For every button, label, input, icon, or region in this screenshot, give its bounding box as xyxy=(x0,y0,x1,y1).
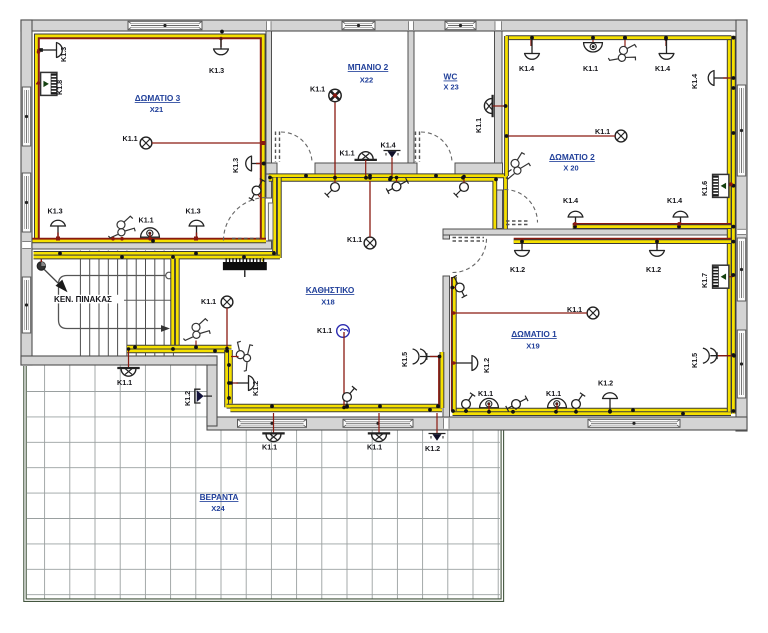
svg-text:K1.5: K1.5 xyxy=(400,352,409,367)
svg-text:K1.1: K1.1 xyxy=(474,118,483,133)
svg-text:WC: WC xyxy=(444,72,458,82)
svg-text:K1.4: K1.4 xyxy=(655,64,670,73)
svg-text:K1.3: K1.3 xyxy=(186,207,201,216)
svg-text:K1.2: K1.2 xyxy=(598,379,613,388)
svg-text:X 23: X 23 xyxy=(444,83,459,92)
svg-text:K1.7: K1.7 xyxy=(700,273,709,288)
svg-text:X21: X21 xyxy=(150,105,164,114)
svg-text:X22: X22 xyxy=(360,76,374,85)
svg-text:K1.3: K1.3 xyxy=(231,158,240,173)
svg-text:X24: X24 xyxy=(211,504,225,513)
svg-text:K1.1: K1.1 xyxy=(201,297,216,306)
svg-text:X 20: X 20 xyxy=(563,164,578,173)
svg-text:K1.1: K1.1 xyxy=(478,389,493,398)
svg-text:K1.3: K1.3 xyxy=(209,66,224,75)
svg-text:K1.1: K1.1 xyxy=(347,235,362,244)
svg-text:K1.4: K1.4 xyxy=(381,141,396,150)
svg-text:K1.1: K1.1 xyxy=(139,216,154,225)
svg-text:X18: X18 xyxy=(321,298,335,307)
svg-text:ΔΩΜΑΤΙΟ 1: ΔΩΜΑΤΙΟ 1 xyxy=(511,329,557,339)
svg-text:K1.1: K1.1 xyxy=(595,127,610,136)
svg-text:ΚΑΘΗΣΤΙΚΟ: ΚΑΘΗΣΤΙΚΟ xyxy=(306,285,355,295)
svg-text:K1.1: K1.1 xyxy=(262,443,277,452)
svg-text:K1.2: K1.2 xyxy=(425,444,440,453)
svg-text:K1.5: K1.5 xyxy=(690,353,699,368)
svg-text:K1.4: K1.4 xyxy=(519,64,534,73)
svg-text:K1.1: K1.1 xyxy=(546,389,561,398)
svg-text:K1.3: K1.3 xyxy=(59,47,68,62)
svg-text:K1.1: K1.1 xyxy=(117,378,132,387)
svg-text:K1.1: K1.1 xyxy=(340,149,355,158)
svg-text:K1.6: K1.6 xyxy=(700,181,709,196)
svg-text:K1.4: K1.4 xyxy=(563,196,578,205)
svg-text:K1.2: K1.2 xyxy=(510,265,525,274)
svg-text:K1.1: K1.1 xyxy=(583,64,598,73)
svg-text:K1.1: K1.1 xyxy=(310,85,325,94)
svg-text:K1.1: K1.1 xyxy=(317,326,332,335)
svg-text:K1.3: K1.3 xyxy=(48,207,63,216)
svg-text:ΚΕΝ. ΠΙΝΑΚΑΣ: ΚΕΝ. ΠΙΝΑΚΑΣ xyxy=(54,295,112,304)
svg-text:X19: X19 xyxy=(526,342,540,351)
svg-text:K1.4: K1.4 xyxy=(667,196,682,205)
svg-text:K1.1: K1.1 xyxy=(367,443,382,452)
svg-text:ΔΩΜΑΤΙΟ 2: ΔΩΜΑΤΙΟ 2 xyxy=(549,152,595,162)
svg-text:ΒΕΡΑΝΤΑ: ΒΕΡΑΝΤΑ xyxy=(200,492,239,502)
svg-text:K1.8: K1.8 xyxy=(55,80,64,95)
svg-text:K1.2: K1.2 xyxy=(482,358,491,373)
svg-text:K1.2: K1.2 xyxy=(183,391,192,406)
svg-text:ΜΠΑΝΙΟ 2: ΜΠΑΝΙΟ 2 xyxy=(348,62,389,72)
svg-text:K1.4: K1.4 xyxy=(690,74,699,89)
svg-text:K1.2: K1.2 xyxy=(646,265,661,274)
svg-text:K1.1: K1.1 xyxy=(123,134,138,143)
svg-text:K1.2: K1.2 xyxy=(251,381,260,396)
svg-text:ΔΩΜΑΤΙΟ 3: ΔΩΜΑΤΙΟ 3 xyxy=(135,93,181,103)
